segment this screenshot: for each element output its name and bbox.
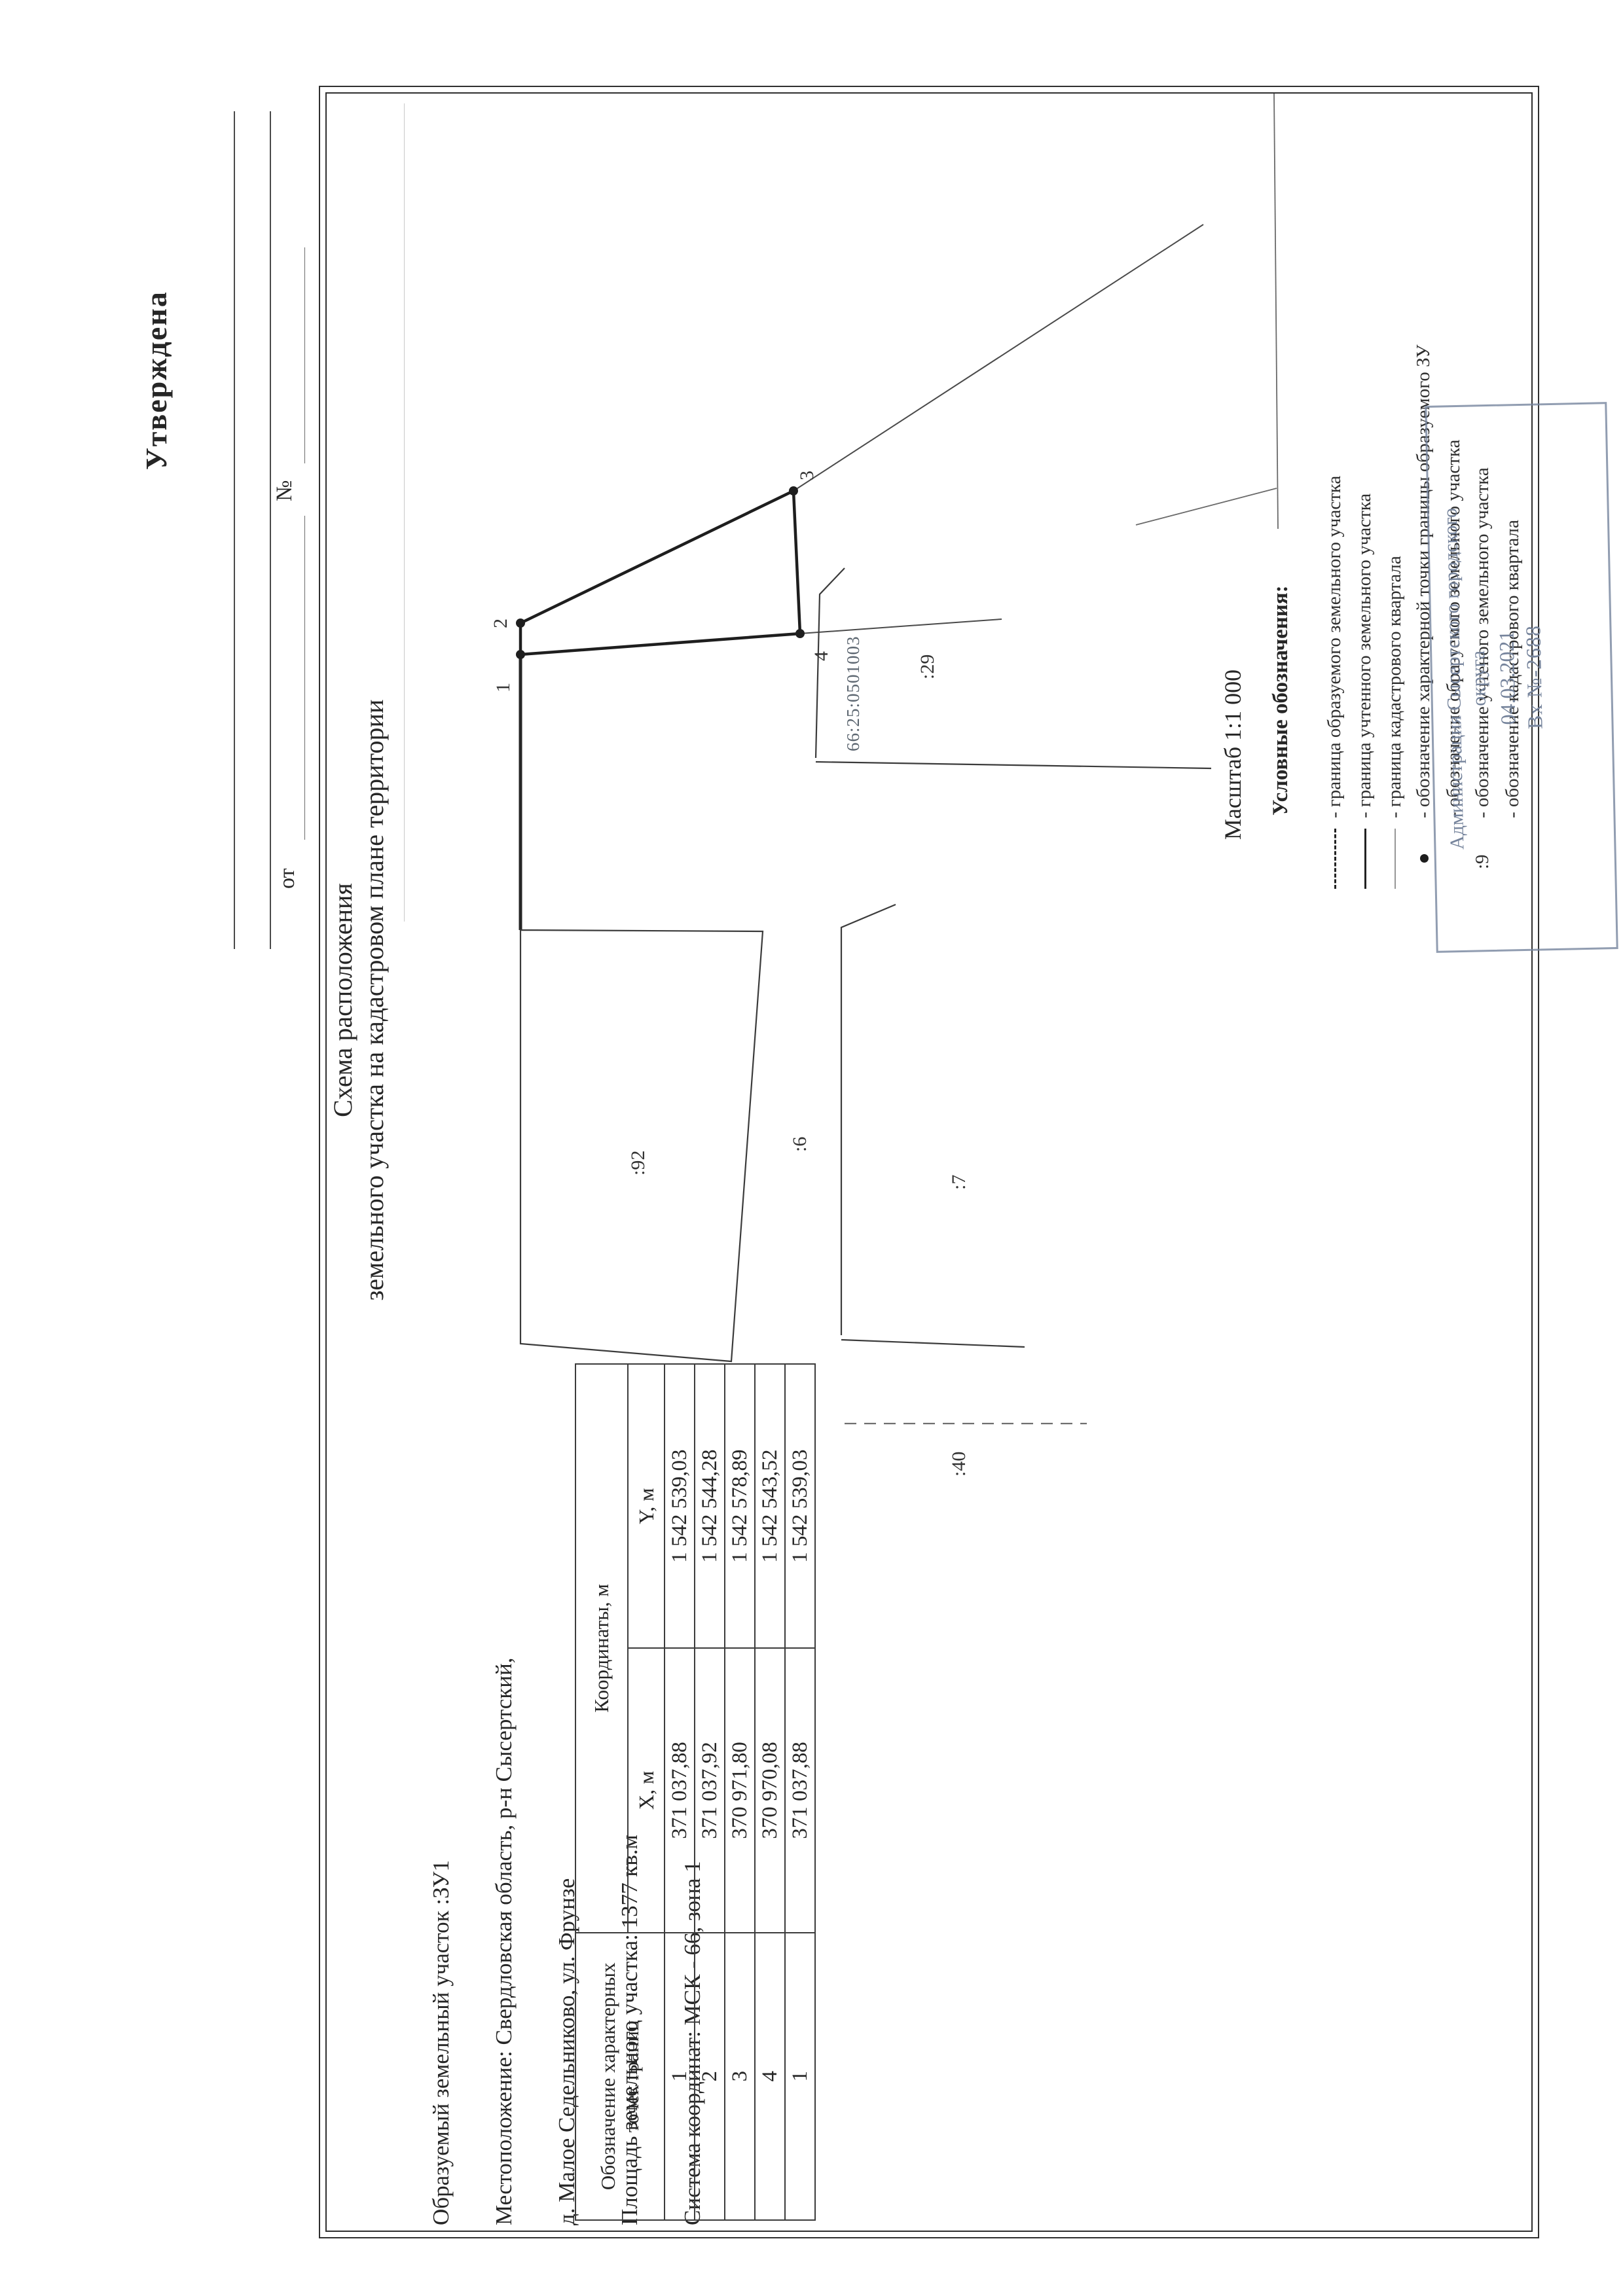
legend-item-text: - граница учтенного земельного участка — [1354, 493, 1376, 818]
cadastral-map — [0, 0, 1623, 2296]
quarter-number-label: 66:25:0501003 — [843, 636, 864, 751]
parcel-zu1-boundary — [520, 491, 800, 655]
legend-sample-thin-line — [1383, 826, 1409, 889]
legend-item-text: - граница кадастрового квартала — [1384, 556, 1406, 818]
parcel-6-boundary — [841, 905, 896, 1335]
point-4-label: 4 — [811, 651, 833, 661]
parcel-29-label: :29 — [917, 655, 939, 679]
parcel-7-label: :7 — [948, 1175, 970, 1190]
point-4-dot — [795, 629, 805, 638]
parcel-40-label: :40 — [948, 1452, 970, 1477]
scale-label: Масштаб 1:1 000 — [1219, 620, 1247, 889]
legend-sample-solid-line — [1353, 826, 1379, 889]
point-2-dot — [516, 619, 525, 628]
parcel-7-boundary — [841, 1340, 1025, 1347]
point-1-label: 1 — [492, 683, 515, 692]
parcel-29-boundary — [816, 568, 1211, 768]
quarter-boundary-line — [1274, 94, 1278, 529]
legend-sample-dashed-line — [1322, 826, 1349, 889]
boundary-extension-through-point4 — [800, 619, 1002, 634]
point-2-label: 2 — [490, 619, 512, 628]
parcel-92-boundary — [520, 930, 763, 1361]
point-3-dot — [789, 486, 798, 495]
registration-stamp: Администрация Сысертского городского окр… — [1425, 402, 1618, 953]
boundary-extension-through-point3 — [793, 224, 1203, 491]
point-1-dot — [516, 650, 525, 659]
parcel-92-label: :92 — [627, 1151, 649, 1175]
legend-title: Условные обозначения: — [1269, 585, 1293, 816]
legend-item-text: - граница образуемого земельного участка — [1324, 476, 1345, 818]
scanned-page: Утверждена от № Схема расположения земел… — [0, 0, 1623, 2296]
quarter-boundary-segment — [1136, 488, 1277, 525]
parcel-6-label: :6 — [789, 1137, 811, 1152]
landscape-sheet: Утверждена от № Схема расположения земел… — [0, 0, 1623, 2296]
point-3-label: 3 — [796, 471, 818, 480]
